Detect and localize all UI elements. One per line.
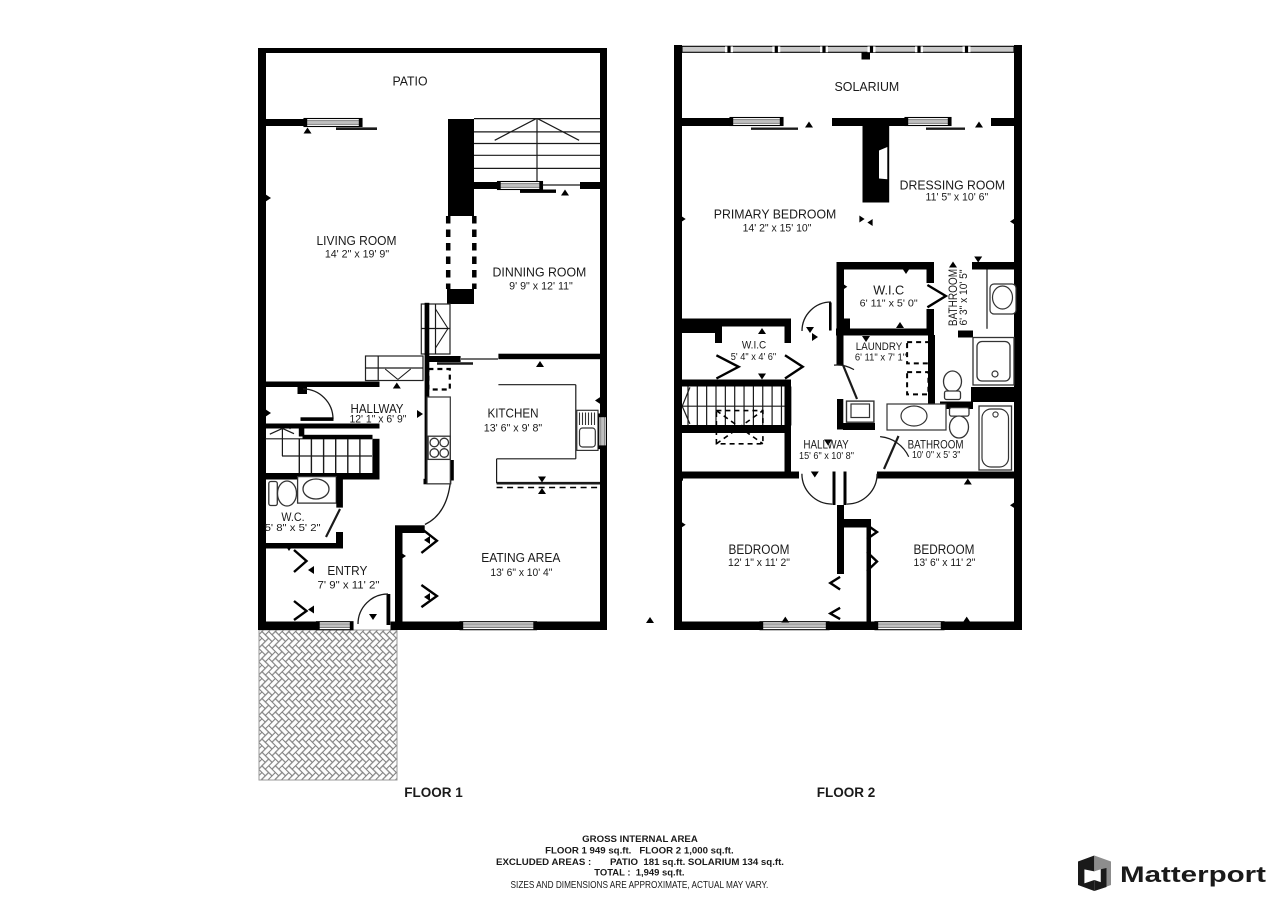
svg-text:11' 5" x 10' 6": 11' 5" x 10' 6" — [926, 192, 989, 204]
svg-text:TOTAL : 1,949 sq.ft.: TOTAL : 1,949 sq.ft. — [594, 868, 684, 879]
svg-text:BEDROOM: BEDROOM — [729, 542, 790, 557]
svg-text:FLOOR 1 949 sq.ft. FLOOR 2 1: FLOOR 1 949 sq.ft. FLOOR 2 1,000 sq.ft. — [545, 845, 734, 856]
svg-text:GROSS INTERNAL AREA: GROSS INTERNAL AREA — [582, 834, 698, 845]
svg-text:12' 1" x 11' 2": 12' 1" x 11' 2" — [728, 557, 790, 569]
svg-text:12' 1" x 6' 9": 12' 1" x 6' 9" — [350, 414, 407, 426]
svg-text:7' 9" x 11' 2": 7' 9" x 11' 2" — [318, 579, 380, 591]
svg-text:15' 6" x 10' 8": 15' 6" x 10' 8" — [799, 450, 854, 462]
svg-text:EATING AREA: EATING AREA — [481, 550, 560, 565]
svg-text:13' 6" x 9' 8": 13' 6" x 9' 8" — [484, 422, 542, 434]
svg-text:BEDROOM: BEDROOM — [914, 542, 975, 557]
svg-text:FLOOR 1: FLOOR 1 — [404, 785, 463, 800]
svg-text:DRESSING ROOM: DRESSING ROOM — [900, 178, 1006, 193]
svg-text:SOLARIUM: SOLARIUM — [835, 79, 900, 94]
svg-text:DINNING ROOM: DINNING ROOM — [493, 265, 587, 280]
svg-text:PRIMARY BEDROOM: PRIMARY BEDROOM — [714, 206, 837, 221]
svg-text:LAUNDRY: LAUNDRY — [856, 341, 903, 353]
svg-text:W.I.C: W.I.C — [873, 283, 904, 298]
svg-text:13' 6" x 10' 4": 13' 6" x 10' 4" — [490, 567, 552, 579]
svg-text:10' 0" x 5' 3": 10' 0" x 5' 3" — [912, 449, 961, 461]
svg-text:LIVING ROOM: LIVING ROOM — [317, 233, 397, 248]
svg-text:FLOOR 2: FLOOR 2 — [817, 785, 876, 800]
svg-text:13' 6" x 11' 2": 13' 6" x 11' 2" — [914, 557, 976, 569]
svg-text:PATIO: PATIO — [393, 74, 428, 89]
svg-text:EXCLUDED AREAS : PATIO: EXCLUDED AREAS : PATIO 181 sq.ft. SOLARI… — [496, 857, 784, 868]
svg-text:W.I.C: W.I.C — [742, 340, 766, 352]
svg-text:KITCHEN: KITCHEN — [487, 406, 538, 421]
svg-text:6' 3" x 10' 5": 6' 3" x 10' 5" — [958, 269, 970, 325]
svg-text:SIZES AND DIMENSIONS ARE APPRO: SIZES AND DIMENSIONS ARE APPROXIMATE, AC… — [511, 880, 769, 891]
svg-text:14' 2" x 15' 10": 14' 2" x 15' 10" — [743, 223, 812, 235]
svg-text:14' 2" x 19' 9": 14' 2" x 19' 9" — [325, 249, 389, 261]
svg-text:ENTRY: ENTRY — [327, 563, 367, 578]
svg-text:9' 9" x 12' 11": 9' 9" x 12' 11" — [509, 280, 573, 292]
svg-text:6' 11" x 5' 0": 6' 11" x 5' 0" — [860, 297, 918, 309]
svg-text:5' 8" x 5' 2": 5' 8" x 5' 2" — [265, 522, 321, 534]
svg-text:Matterport: Matterport — [1120, 862, 1267, 887]
svg-text:6' 11" x 7' 1": 6' 11" x 7' 1" — [855, 353, 907, 364]
svg-text:5' 4" x 4' 6": 5' 4" x 4' 6" — [731, 352, 777, 363]
